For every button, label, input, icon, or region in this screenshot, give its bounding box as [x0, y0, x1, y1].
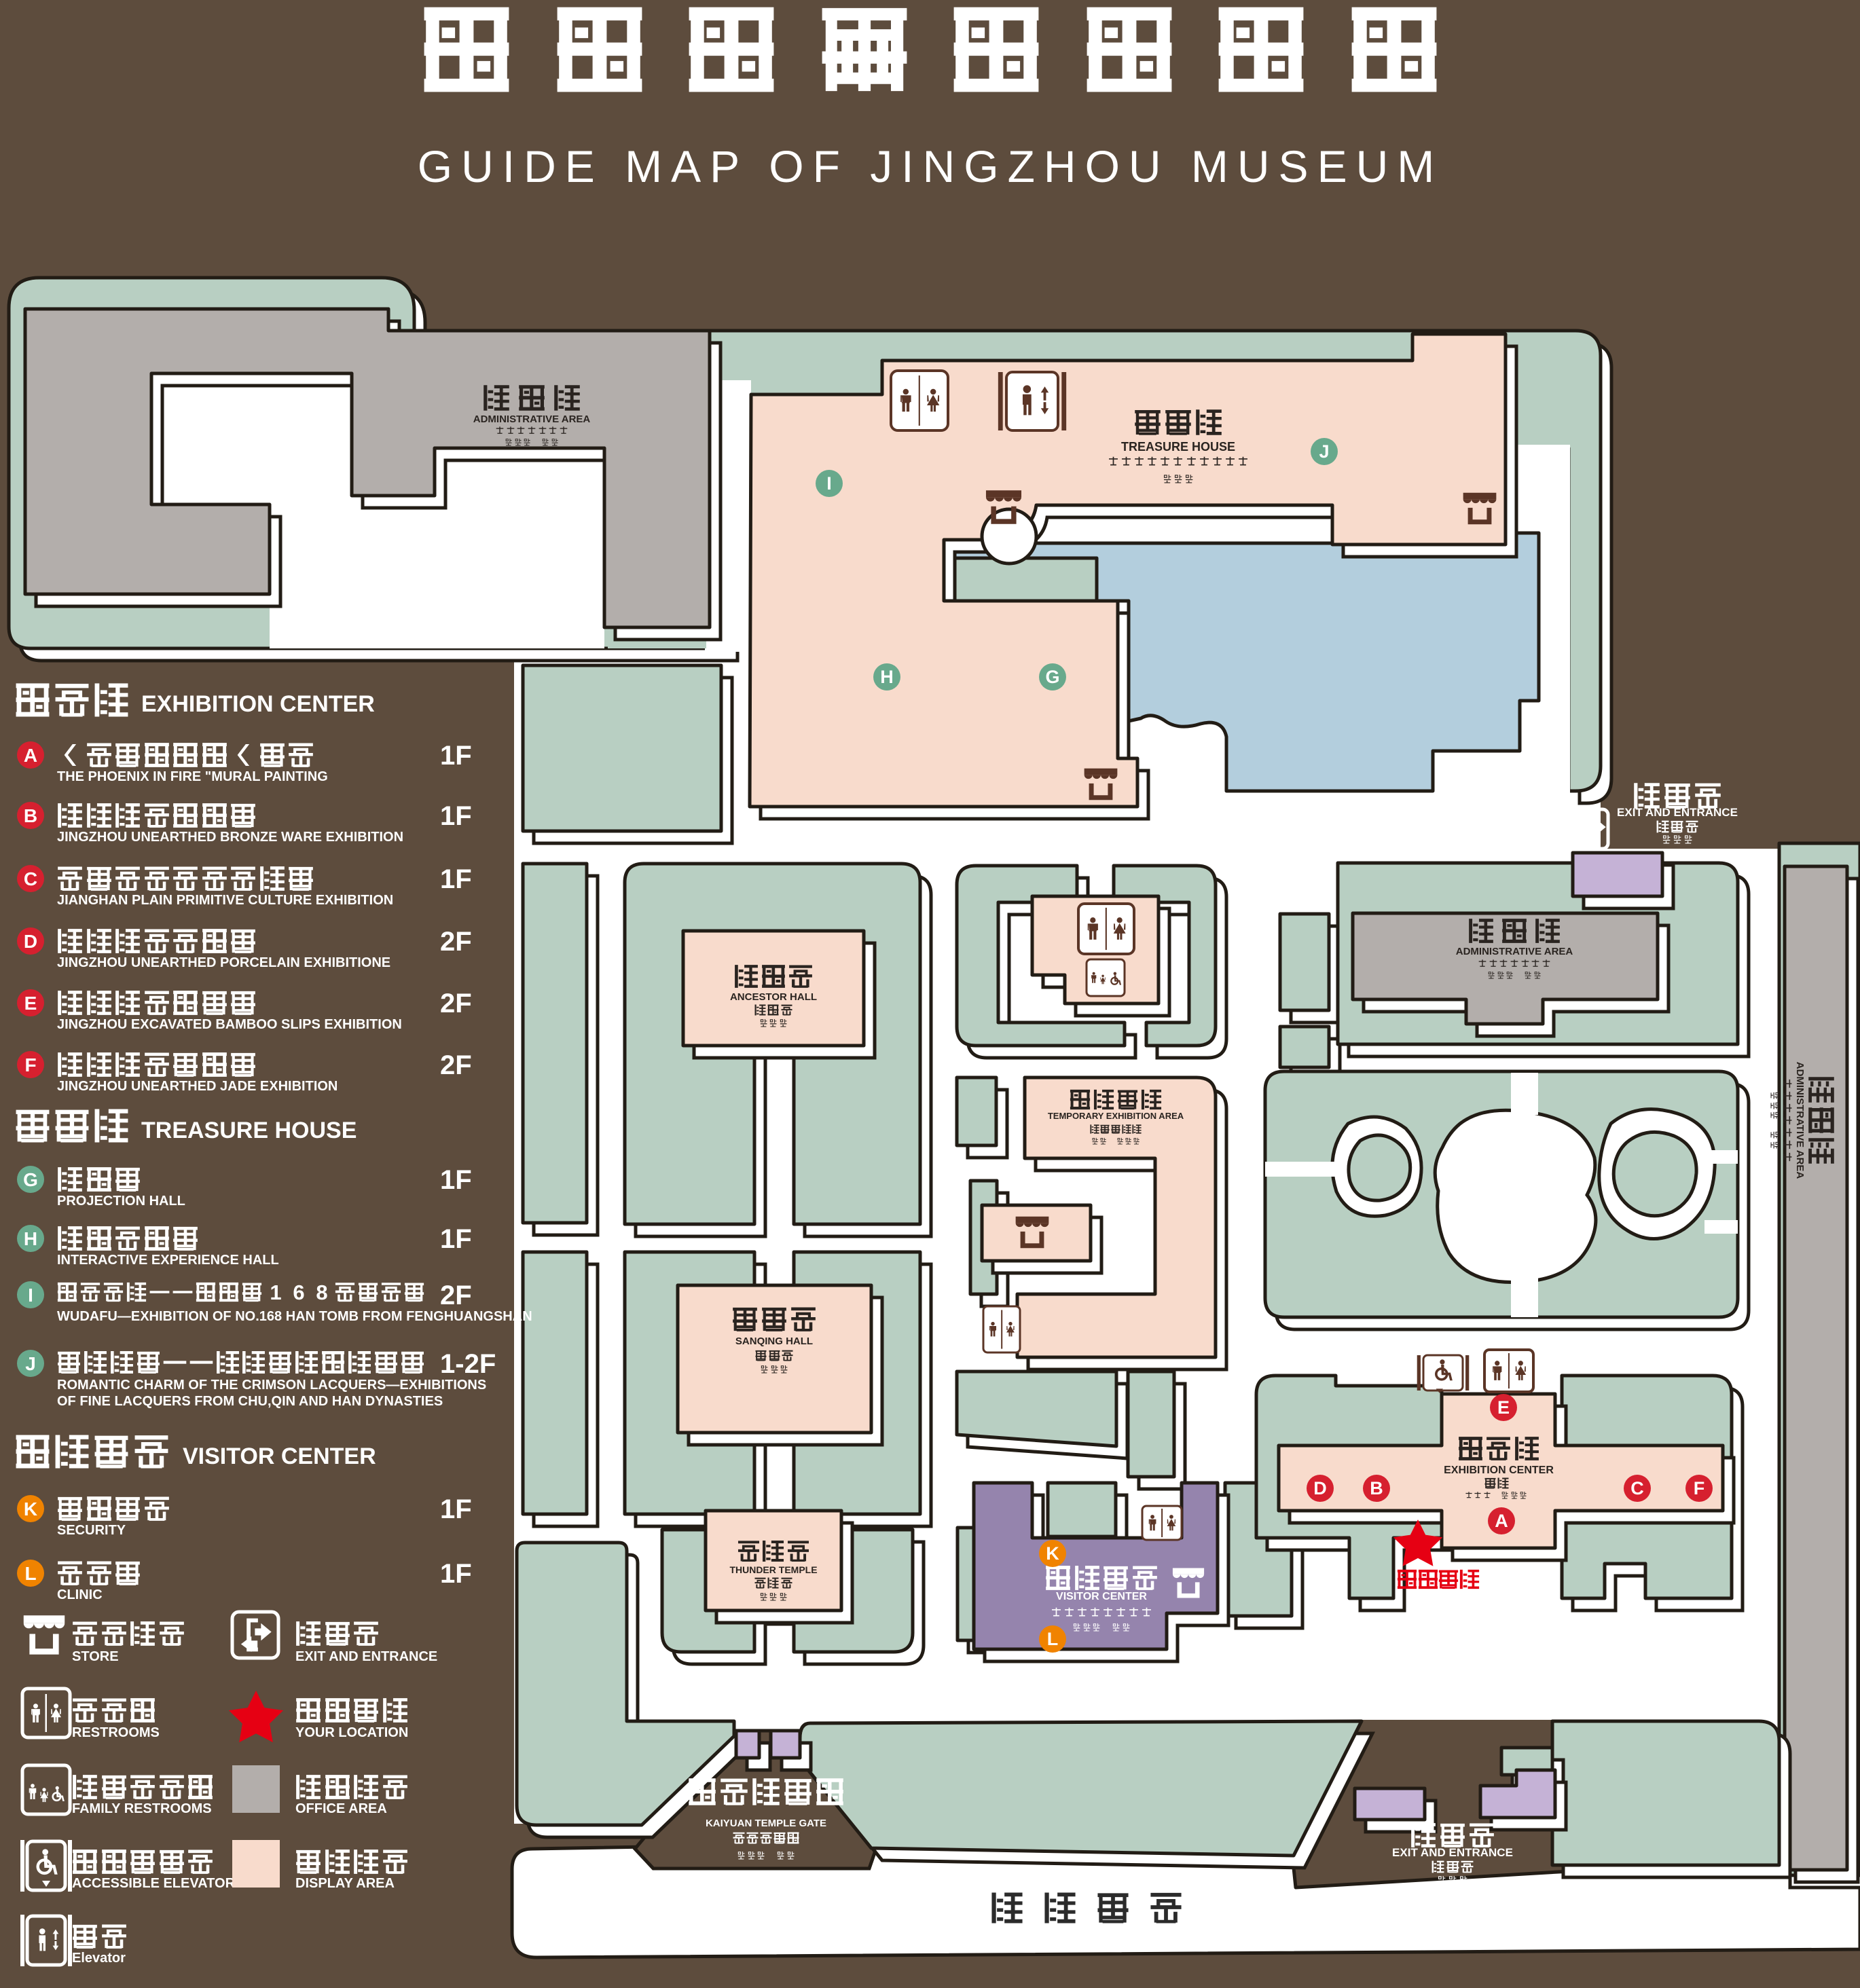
- svg-text:STORE: STORE: [72, 1649, 119, 1664]
- svg-text:1: 1: [270, 1281, 281, 1304]
- svg-text:G: G: [23, 1169, 38, 1190]
- svg-text:SANQING HALL: SANQING HALL: [735, 1336, 813, 1347]
- svg-text:F: F: [24, 1054, 36, 1075]
- svg-text:ADMINISTRATIVE AREA: ADMINISTRATIVE AREA: [473, 413, 591, 425]
- svg-text:I: I: [826, 473, 832, 494]
- svg-text:L: L: [1047, 1629, 1059, 1649]
- svg-text:J: J: [1319, 441, 1329, 462]
- svg-text:SECURITY: SECURITY: [57, 1523, 126, 1538]
- svg-text:C: C: [1630, 1478, 1644, 1498]
- svg-text:JIANGHAN PLAIN PRIMITIVE CULTU: JIANGHAN PLAIN PRIMITIVE CULTURE EXHIBIT…: [57, 893, 393, 908]
- svg-text:ADMINISTRATIVE AREA: ADMINISTRATIVE AREA: [1794, 1062, 1806, 1179]
- svg-text:F: F: [1694, 1478, 1705, 1498]
- svg-text:B: B: [24, 805, 37, 826]
- svg-text:YOUR LOCATION: YOUR LOCATION: [295, 1725, 408, 1740]
- svg-text:1F: 1F: [440, 801, 472, 831]
- svg-text:JINGZHOU UNEARTHED JADE EXHIBI: JINGZHOU UNEARTHED JADE EXHIBITION: [57, 1079, 338, 1094]
- svg-text:ROMANTIC CHARM OF THE CRIMSON: ROMANTIC CHARM OF THE CRIMSON LACQUERS—E…: [57, 1378, 486, 1393]
- svg-text:DISPLAY AREA: DISPLAY AREA: [295, 1876, 395, 1891]
- svg-text:I: I: [28, 1285, 33, 1306]
- svg-text:8: 8: [316, 1281, 327, 1304]
- svg-text:L: L: [24, 1563, 36, 1584]
- svg-text:RESTROOMS: RESTROOMS: [72, 1725, 160, 1740]
- svg-text:FAMILY RESTROOMS: FAMILY RESTROOMS: [72, 1801, 212, 1816]
- svg-text:H: H: [880, 667, 894, 687]
- svg-text:KAIYUAN TEMPLE GATE: KAIYUAN TEMPLE GATE: [706, 1818, 826, 1829]
- svg-text:EXHIBITION CENTER: EXHIBITION CENTER: [141, 691, 375, 717]
- svg-text:H: H: [24, 1228, 37, 1249]
- svg-text:EXIT AND ENTRANCE: EXIT AND ENTRANCE: [295, 1649, 437, 1664]
- svg-text:TREASURE HOUSE: TREASURE HOUSE: [1121, 440, 1235, 454]
- svg-text:2F: 2F: [440, 1050, 472, 1080]
- svg-text:K: K: [24, 1498, 37, 1520]
- svg-text:1F: 1F: [440, 1165, 472, 1195]
- svg-text:CLINIC: CLINIC: [57, 1587, 103, 1602]
- svg-text:1F: 1F: [440, 741, 472, 771]
- svg-text:1-2F: 1-2F: [440, 1349, 496, 1379]
- svg-text:A: A: [1495, 1511, 1508, 1531]
- svg-text:2F: 2F: [440, 989, 472, 1018]
- svg-text:D: D: [24, 931, 37, 952]
- svg-text:ANCESTOR HALL: ANCESTOR HALL: [730, 991, 817, 1003]
- svg-text:OF FINE LACQUERS FROM CHU,QIN: OF FINE LACQUERS FROM CHU,QIN AND HAN DY…: [57, 1394, 443, 1409]
- svg-text:OFFICE AREA: OFFICE AREA: [295, 1801, 387, 1816]
- svg-text:1F: 1F: [440, 1494, 472, 1524]
- svg-text:B: B: [1370, 1478, 1383, 1498]
- svg-text:G: G: [1045, 667, 1059, 687]
- svg-text:D: D: [1313, 1478, 1327, 1498]
- svg-text:TREASURE HOUSE: TREASURE HOUSE: [141, 1118, 357, 1143]
- svg-text:PROJECTION HALL: PROJECTION HALL: [57, 1194, 185, 1209]
- svg-text:TEMPORARY EXHIBITION AREA: TEMPORARY EXHIBITION AREA: [1048, 1111, 1184, 1121]
- svg-text:JINGZHOU EXCAVATED BAMBOO SLIP: JINGZHOU EXCAVATED BAMBOO SLIPS EXHIBITI…: [57, 1017, 402, 1032]
- svg-text:EXHIBITION CENTER: EXHIBITION CENTER: [1444, 1465, 1554, 1476]
- svg-text:JINGZHOU UNEARTHED PORCELAIN E: JINGZHOU UNEARTHED PORCELAIN EXHIBITIONE: [57, 955, 390, 970]
- svg-text:C: C: [24, 868, 37, 889]
- svg-text:6: 6: [293, 1281, 304, 1304]
- svg-text:J: J: [25, 1353, 36, 1374]
- svg-text:1F: 1F: [440, 1224, 472, 1254]
- svg-text:1F: 1F: [440, 864, 472, 894]
- svg-text:A: A: [24, 745, 37, 766]
- svg-text:INTERACTIVE EXPERIENCE HALL: INTERACTIVE EXPERIENCE HALL: [57, 1253, 279, 1268]
- svg-text:THUNDER TEMPLE: THUNDER TEMPLE: [729, 1564, 817, 1575]
- svg-text:VISITOR CENTER: VISITOR CENTER: [183, 1443, 376, 1469]
- svg-text:2F: 2F: [440, 927, 472, 957]
- svg-text:GUIDE MAP OF JINGZHOU MUSEUM: GUIDE MAP OF JINGZHOU MUSEUM: [418, 141, 1444, 191]
- svg-text:1F: 1F: [440, 1559, 472, 1589]
- svg-text:E: E: [24, 993, 37, 1014]
- svg-text:VISITOR CENTER: VISITOR CENTER: [1056, 1591, 1147, 1602]
- svg-text:ACCESSIBLE ELEVATOR: ACCESSIBLE ELEVATOR: [72, 1876, 236, 1891]
- svg-text:JINGZHOU UNEARTHED BRONZE WARE: JINGZHOU UNEARTHED BRONZE WARE EXHIBITIO…: [57, 830, 403, 845]
- svg-text:2F: 2F: [440, 1281, 472, 1310]
- svg-text:Elevator: Elevator: [72, 1951, 126, 1966]
- svg-text:EXIT AND ENTRANCE: EXIT AND ENTRANCE: [1392, 1846, 1513, 1859]
- svg-text:ADMINISTRATIVE AREA: ADMINISTRATIVE AREA: [1456, 946, 1573, 957]
- svg-text:K: K: [1046, 1543, 1059, 1564]
- svg-text:E: E: [1497, 1397, 1510, 1418]
- svg-text:WUDAFU—EXHIBITION OF NO.168 HA: WUDAFU—EXHIBITION OF NO.168 HAN TOMB FRO…: [57, 1309, 532, 1324]
- svg-text:THE PHOENIX IN FIRE "MURAL PAI: THE PHOENIX IN FIRE "MURAL PAINTING: [57, 769, 328, 784]
- svg-text:EXIT AND ENTRANCE: EXIT AND ENTRANCE: [1617, 806, 1738, 819]
